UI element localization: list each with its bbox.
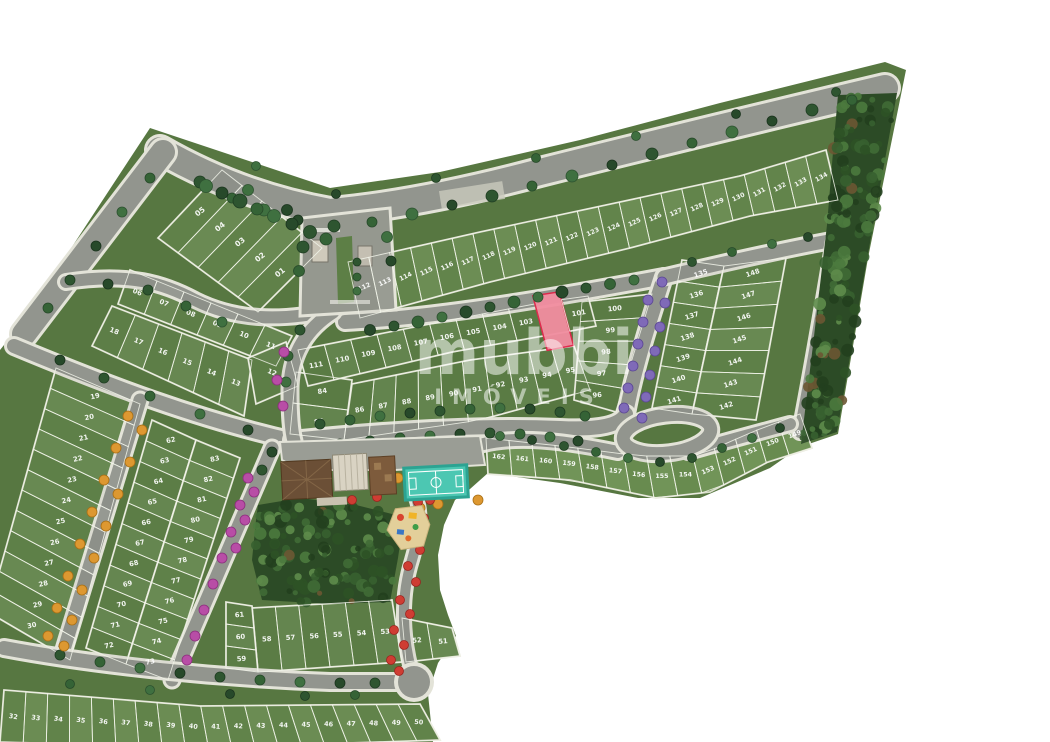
lot-number-41: 41 — [211, 722, 221, 731]
sport-court — [402, 463, 470, 501]
lot-number-88: 88 — [401, 397, 412, 407]
master-plan-svg: 0504030201060708091011181716151413121920… — [0, 0, 1050, 742]
lot-number-37: 37 — [121, 718, 131, 727]
lot-number-38: 38 — [143, 719, 154, 728]
watermark-brand: mubbi — [415, 316, 634, 389]
lot-number-44: 44 — [279, 721, 289, 730]
map-canvas: 0504030201060708091011181716151413121920… — [0, 0, 1050, 742]
lot-number-46: 46 — [324, 720, 334, 729]
lot-number-154: 154 — [679, 472, 693, 479]
lot-number-43: 43 — [256, 721, 266, 730]
lot-number-49: 49 — [391, 718, 401, 727]
lot-number-84: 84 — [317, 387, 328, 396]
lot-number-100: 100 — [607, 304, 622, 313]
lot-number-161: 161 — [515, 455, 529, 463]
lots-row-53-58: 585756555453 — [252, 600, 402, 672]
lot-number-57: 57 — [286, 634, 296, 642]
lot-number-60: 60 — [235, 633, 245, 642]
lot-number-39: 39 — [166, 721, 177, 730]
lot-number-55: 55 — [333, 631, 343, 639]
lot-number-34: 34 — [53, 714, 64, 723]
lot-number-52: 52 — [412, 636, 422, 645]
lot-number-32: 32 — [8, 712, 18, 721]
lot-number-33: 33 — [31, 713, 41, 722]
lot-number-58: 58 — [262, 635, 272, 643]
lot-number-87: 87 — [378, 401, 389, 411]
lot-number-162: 162 — [492, 453, 506, 461]
watermark: mubbiIMÓVEIS — [415, 316, 634, 409]
lot-number-36: 36 — [98, 717, 109, 726]
lot-number-160: 160 — [539, 457, 553, 465]
lot-number-42: 42 — [234, 722, 244, 731]
lot-number-35: 35 — [76, 716, 87, 725]
lot-number-155: 155 — [655, 473, 668, 480]
lot-number-56: 56 — [309, 632, 319, 640]
lot-number-54: 54 — [357, 629, 367, 637]
watermark-subtitle: IMÓVEIS — [434, 384, 604, 409]
lot-number-59: 59 — [236, 655, 246, 664]
lot-number-86: 86 — [354, 405, 365, 415]
lot-number-61: 61 — [234, 611, 244, 620]
lot-number-47: 47 — [346, 719, 356, 728]
lot-number-51: 51 — [438, 637, 448, 646]
forest-central — [251, 498, 404, 607]
lot-number-53: 53 — [380, 628, 390, 636]
lot-number-40: 40 — [188, 722, 199, 731]
lot-number-50: 50 — [414, 718, 424, 727]
lot-number-45: 45 — [301, 720, 311, 729]
lot-number-48: 48 — [369, 719, 379, 728]
